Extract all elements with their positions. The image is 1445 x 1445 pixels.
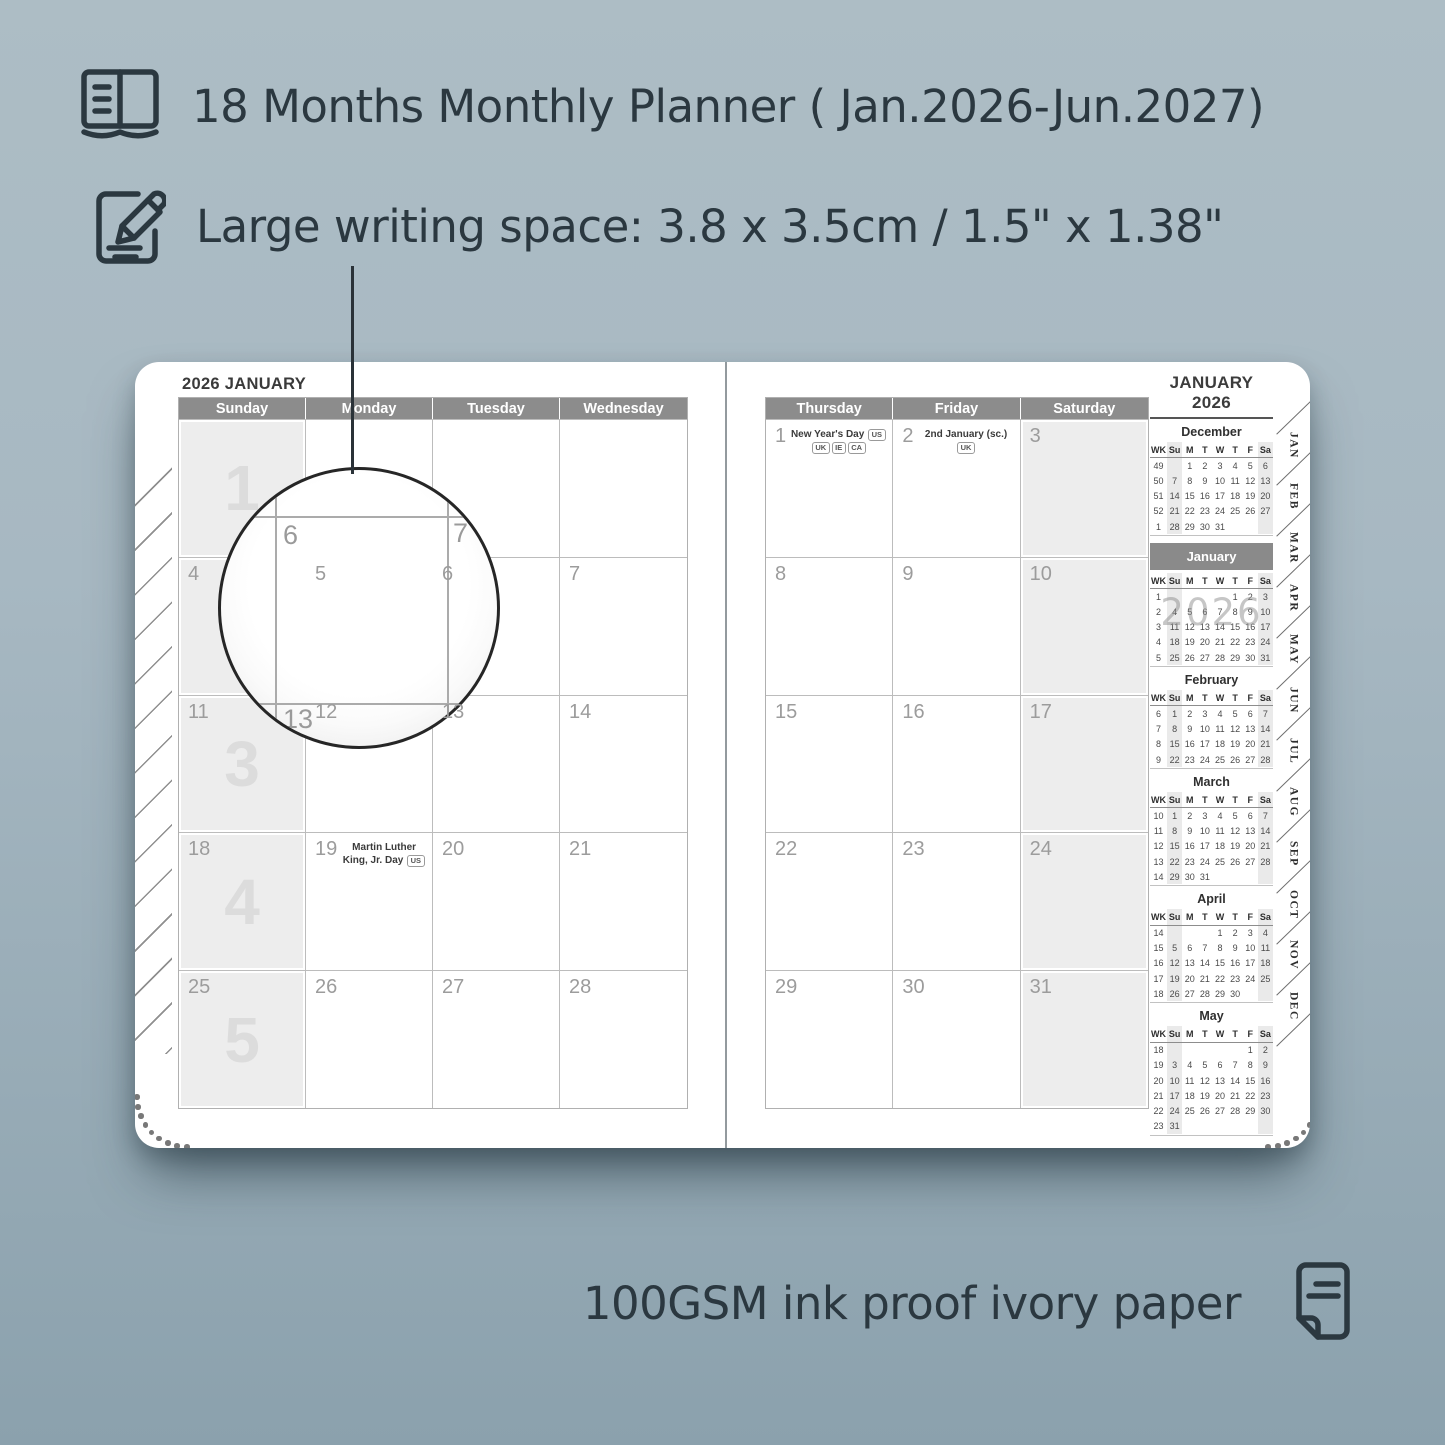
mini-date: 6 [1197,605,1212,620]
mini-date: 16 [1182,839,1197,854]
mini-col-header: T [1197,690,1212,706]
mini-date: 31 [1258,650,1273,665]
right-month-grid: ThursdayFridaySaturday1New Year's Day US… [765,397,1149,1109]
mini-date: 25 [1228,504,1243,519]
mini-col-header: T [1228,909,1243,925]
corner-perforation-dot [1265,1144,1271,1148]
mini-date: 1 [1228,589,1243,604]
mini-date: 31 [1197,869,1212,884]
mini-month-table: WKSuMTWTFSa18121934567892010111213141516… [1150,1026,1273,1135]
mini-month-title: March [1150,775,1273,789]
mini-date: 28 [1258,752,1273,767]
mini-months: DecemberWKSuMTWTFSa491234565078910111213… [1150,425,1273,1136]
mini-month-table: WKSuMTWTFSa11232456789103111213141516174… [1150,573,1273,667]
mini-date: 13 [1212,1073,1227,1088]
mini-date: 2 [1258,1043,1273,1058]
mini-col-header: T [1197,1026,1212,1042]
month-tab-label: JUN [1277,675,1310,726]
country-tag: US [868,429,885,441]
date-cell: 22 [766,832,893,970]
mini-date: 11 [1167,620,1182,635]
mini-date: 26 [1243,504,1258,519]
mini-date: 16 [1243,620,1258,635]
mini-date: 12 [1228,824,1243,839]
mini-col-header: Sa [1258,690,1273,706]
date-cell: 27 [433,970,560,1108]
date-number: 8 [775,563,786,586]
mini-date [1167,1043,1182,1058]
date-number: 25 [188,976,210,999]
mini-date: 29 [1243,1103,1258,1118]
page-binding [725,362,727,1148]
mini-date: 18 [1182,1088,1197,1103]
mini-date: 20 [1197,635,1212,650]
mini-date: 29 [1212,986,1227,1001]
mini-date: 15 [1167,839,1182,854]
mini-date: 14 [1212,620,1227,635]
mini-date [1228,1119,1243,1134]
mini-date: 4 [1167,605,1182,620]
mini-date: 7 [1197,941,1212,956]
date-number: 30 [902,976,924,999]
mini-date: 27 [1212,1103,1227,1118]
mini-date: 14 [1258,824,1273,839]
corner-perforation-dot [143,1122,149,1128]
date-number: 3 [1030,425,1041,448]
mini-month-title: February [1150,673,1273,687]
mini-date: 19 [1228,839,1243,854]
mini-col-header: WK [1150,792,1167,808]
corner-perforation-dot [149,1130,155,1136]
mini-date: 14 [1228,1073,1243,1088]
mini-date: 9 [1228,941,1243,956]
mini-week-number: 21 [1150,1088,1167,1103]
mini-week-number: 14 [1150,869,1167,884]
mini-date: 2 [1228,926,1243,941]
mini-week-number: 14 [1150,926,1167,941]
month-tab-jan: JAN [1277,420,1310,471]
mini-date: 10 [1258,605,1273,620]
mini-date: 12 [1182,620,1197,635]
mini-date: 26 [1167,986,1182,1001]
mini-date: 3 [1243,926,1258,941]
mini-col-header: F [1243,442,1258,458]
mini-week-number: 22 [1150,1103,1167,1118]
mini-date: 6 [1258,458,1273,473]
mini-date: 20 [1243,839,1258,854]
mini-col-header: Su [1167,909,1182,925]
date-cell: 24 [1021,832,1148,970]
mini-date: 9 [1258,1058,1273,1073]
mini-date: 28 [1228,1103,1243,1118]
mini-date: 15 [1167,737,1182,752]
mini-date: 8 [1228,605,1243,620]
date-number: 26 [315,976,337,999]
mini-date: 16 [1197,489,1212,504]
mini-date [1258,1119,1273,1134]
mini-date: 19 [1197,1088,1212,1103]
mini-col-header: M [1182,909,1197,925]
day-header-saturday: Saturday [1021,398,1148,419]
mini-date: 1 [1212,926,1227,941]
mini-date: 16 [1258,1073,1273,1088]
mini-date: 11 [1212,722,1227,737]
mini-date: 15 [1182,489,1197,504]
mini-date: 5 [1228,706,1243,721]
day-header-wednesday: Wednesday [560,398,687,419]
mini-date: 5 [1197,1058,1212,1073]
mini-col-header: T [1228,573,1243,589]
mini-date: 1 [1167,706,1182,721]
mini-date: 2 [1182,808,1197,823]
date-cell: 21 [560,832,687,970]
date-number: 21 [569,838,591,861]
mini-date: 19 [1182,635,1197,650]
country-tag: UK [812,442,830,454]
month-tab-label: SEP [1277,828,1310,879]
date-number: 24 [1030,838,1052,861]
mini-week-number: 13 [1150,854,1167,869]
mini-col-header: F [1243,909,1258,925]
magnified-grid-line [227,516,491,518]
mini-date: 24 [1212,504,1227,519]
mini-date [1212,1119,1227,1134]
mini-date: 21 [1258,839,1273,854]
mini-date: 22 [1167,854,1182,869]
mini-col-header: WK [1150,690,1167,706]
month-tab-sep: SEP [1277,828,1310,879]
magnified-grid-line [447,490,449,730]
mini-col-header: T [1197,792,1212,808]
feature-text-writing-space: Large writing space: 3.8 x 3.5cm / 1.5" … [196,200,1223,253]
paper-icon [1285,1258,1355,1349]
mini-date: 23 [1258,1088,1273,1103]
date-cell [560,419,687,557]
date-cell: 7 [560,557,687,695]
month-tab-label: APR [1277,573,1310,624]
mini-date: 24 [1167,1103,1182,1118]
mini-date: 28 [1197,986,1212,1001]
mini-date: 21 [1167,504,1182,519]
mini-date: 29 [1228,650,1243,665]
mini-date: 6 [1212,1058,1227,1073]
mini-date: 5 [1243,458,1258,473]
country-tag: UK [957,442,975,454]
mini-date: 21 [1197,971,1212,986]
month-tab-label: OCT [1277,879,1310,930]
mini-date: 30 [1182,869,1197,884]
mini-date: 24 [1243,971,1258,986]
mini-week-number: 6 [1150,706,1167,721]
date-cell: 31 [1021,970,1148,1108]
country-tag: IE [832,442,846,454]
mini-week-number: 15 [1150,941,1167,956]
mini-week-number: 16 [1150,956,1167,971]
date-number: 31 [1030,976,1052,999]
mini-date: 15 [1212,956,1227,971]
mini-date: 27 [1258,504,1273,519]
month-tab-label: FEB [1277,471,1310,522]
mini-col-header: WK [1150,909,1167,925]
mini-date: 3 [1197,706,1212,721]
date-number: 23 [902,838,924,861]
month-tab-strip: JANFEBMARAPRMAYJUNJULAUGSEPOCTNOVDEC [1277,420,1310,1032]
mini-week-number: 2 [1150,605,1167,620]
mini-date: 26 [1182,650,1197,665]
mini-date: 27 [1197,650,1212,665]
weekend-shade [1023,422,1146,555]
mini-date: 29 [1182,519,1197,534]
mini-date: 28 [1167,519,1182,534]
mini-month-may: MayWKSuMTWTFSa18121934567892010111213141… [1150,1009,1273,1135]
mini-col-header: WK [1150,573,1167,589]
mini-date: 12 [1228,722,1243,737]
mini-col-header: Sa [1258,573,1273,589]
date-cell: 30 [893,970,1020,1108]
magnified-date: 6 [283,520,298,551]
mini-date: 4 [1228,458,1243,473]
mini-col-header: Su [1167,442,1182,458]
country-tag: CA [848,442,866,454]
mini-col-header: Sa [1258,909,1273,925]
mini-date: 19 [1243,489,1258,504]
corner-perforation-dot [1275,1143,1281,1148]
corner-perforation-dot [138,1113,144,1119]
month-tab-label: NOV [1277,930,1310,981]
mini-week-number: 17 [1150,971,1167,986]
mini-date: 25 [1167,650,1182,665]
mini-month-table: WKSuMTWTFSa14123415567891011161213141516… [1150,909,1273,1003]
date-number: 14 [569,701,591,724]
mini-date [1212,589,1227,604]
mini-date: 18 [1212,839,1227,854]
month-tab-label: JAN [1277,420,1310,471]
right-page-title: JANUARY 2026 [1150,373,1273,413]
date-number: 18 [188,838,210,861]
mini-date: 15 [1228,620,1243,635]
date-number: 22 [775,838,797,861]
mini-week-number: 7 [1150,722,1167,737]
notebook-icon [78,66,162,147]
sidebar-rule [1150,417,1273,419]
mini-date: 5 [1167,941,1182,956]
date-cell: 20 [433,832,560,970]
mini-date [1212,1043,1227,1058]
mini-date: 21 [1212,635,1227,650]
day-header-tuesday: Tuesday [433,398,560,419]
mini-col-header: WK [1150,442,1167,458]
mini-date: 23 [1182,752,1197,767]
mini-date [1258,986,1273,1001]
left-page-title: 2026 JANUARY [182,375,306,394]
mini-date: 12 [1197,1073,1212,1088]
mini-date: 30 [1197,519,1212,534]
mini-date [1228,869,1243,884]
mini-date: 8 [1243,1058,1258,1073]
mini-month-january: JanuaryWKSuMTWTFSa1123245678910311121314… [1150,543,1273,667]
mini-date: 17 [1197,737,1212,752]
holiday-label: Martin Luther King, Jr. Day US [339,841,429,867]
mini-date: 6 [1243,808,1258,823]
month-tab-aug: AUG [1277,777,1310,828]
pencil-note-icon [88,180,166,273]
date-cell: 23 [893,832,1020,970]
date-cell: 16 [893,695,1020,833]
mini-date: 2 [1197,458,1212,473]
mini-date [1167,458,1182,473]
mini-week-number: 51 [1150,489,1167,504]
mini-date: 18 [1167,635,1182,650]
mini-date: 9 [1182,722,1197,737]
mini-date: 9 [1243,605,1258,620]
day-header-thursday: Thursday [766,398,893,419]
mini-week-number: 52 [1150,504,1167,519]
mini-month-december: DecemberWKSuMTWTFSa491234565078910111213… [1150,425,1273,536]
mini-date: 9 [1197,473,1212,488]
mini-date: 5 [1228,808,1243,823]
mini-week-number: 5 [1150,650,1167,665]
mini-month-title: April [1150,892,1273,906]
mini-date: 14 [1167,489,1182,504]
date-number: 6 [442,563,453,586]
mini-col-header: M [1182,442,1197,458]
mini-date: 25 [1212,854,1227,869]
feature-row-paper: 100GSM ink proof ivory paper [0,1258,1355,1349]
mini-date [1197,1043,1212,1058]
mini-date: 4 [1212,706,1227,721]
mini-date: 31 [1167,1119,1182,1134]
month-tab-mar: MAR [1277,522,1310,573]
mini-date: 3 [1167,1058,1182,1073]
mini-col-header: Sa [1258,792,1273,808]
mini-month-title: December [1150,425,1273,439]
mini-date: 7 [1258,808,1273,823]
mini-week-number: 9 [1150,752,1167,767]
mini-date [1243,986,1258,1001]
corner-perforation-dot [1301,1130,1307,1136]
mini-date: 16 [1228,956,1243,971]
mini-col-header: W [1212,1026,1227,1042]
day-header-monday: Monday [306,398,433,419]
date-number: 19 [315,838,337,861]
month-tab-may: MAY [1277,624,1310,675]
magnifier-pointer-line [351,266,354,474]
mini-date: 10 [1243,941,1258,956]
mini-col-header: W [1212,792,1227,808]
mini-date: 22 [1212,971,1227,986]
mini-date: 10 [1167,1073,1182,1088]
date-number: 2 [902,425,913,448]
mini-col-header: M [1182,573,1197,589]
mini-date: 26 [1228,854,1243,869]
day-header-friday: Friday [893,398,1020,419]
corner-perforation-dot [184,1144,190,1148]
date-number: 29 [775,976,797,999]
mini-date [1182,589,1197,604]
mini-date: 27 [1182,986,1197,1001]
mini-date: 28 [1258,854,1273,869]
mini-date: 24 [1197,854,1212,869]
mini-date [1197,926,1212,941]
mini-col-header: W [1212,573,1227,589]
mini-col-header: T [1228,1026,1243,1042]
mini-date: 6 [1243,706,1258,721]
mini-date [1243,869,1258,884]
mini-month-highlight-bar: January [1150,543,1273,570]
mini-date [1197,589,1212,604]
date-number: 13 [442,701,464,724]
mini-date: 16 [1182,737,1197,752]
date-number: 5 [315,563,326,586]
corner-perforation-dot [135,1104,141,1110]
mini-date: 12 [1167,956,1182,971]
mini-week-number: 11 [1150,824,1167,839]
date-number: 20 [442,838,464,861]
mini-date: 27 [1243,752,1258,767]
mini-date: 11 [1228,473,1243,488]
mini-col-header: T [1228,792,1243,808]
mini-col-header: M [1182,1026,1197,1042]
mini-date: 22 [1243,1088,1258,1103]
mini-week-number: 19 [1150,1058,1167,1073]
month-tab-label: DEC [1277,981,1310,1032]
mini-date: 13 [1197,620,1212,635]
mini-week-number: 50 [1150,473,1167,488]
month-tab-label: JUL [1277,726,1310,777]
date-number: 1 [775,425,786,448]
mini-date: 17 [1243,956,1258,971]
mini-date: 23 [1197,504,1212,519]
mini-date: 11 [1182,1073,1197,1088]
date-cell: 22nd January (sc.) UK [893,419,1020,557]
mini-col-header: F [1243,1026,1258,1042]
mini-date: 25 [1212,752,1227,767]
mini-date: 1 [1182,458,1197,473]
date-cell: 8 [766,557,893,695]
mini-date: 21 [1258,737,1273,752]
mini-date: 6 [1182,941,1197,956]
mini-date: 29 [1167,869,1182,884]
mini-col-header: W [1212,442,1227,458]
month-tab-dec: DEC [1277,981,1310,1032]
mini-col-header: Sa [1258,442,1273,458]
feature-text-planner-range: 18 Months Monthly Planner ( Jan.2026-Jun… [192,80,1264,133]
date-cell: 9 [893,557,1020,695]
mini-date [1228,519,1243,534]
mini-calendar-sidebar: JANUARY 2026 DecemberWKSuMTWTFSa49123456… [1150,370,1273,1136]
date-number: 17 [1030,701,1052,724]
mini-date: 4 [1212,808,1227,823]
magnified-date: 13 [283,704,313,735]
date-cell: 14 [560,695,687,833]
mini-date: 13 [1182,956,1197,971]
holiday-label: 2nd January (sc.) UK [915,428,1016,454]
mini-date: 4 [1182,1058,1197,1073]
corner-perforation-dot [1307,1122,1310,1128]
mini-date: 4 [1258,926,1273,941]
mini-week-number: 4 [1150,635,1167,650]
feature-text-paper: 100GSM ink proof ivory paper [583,1277,1241,1330]
month-tab-jun: JUN [1277,675,1310,726]
mini-col-header: W [1212,909,1227,925]
date-number: 4 [188,563,199,586]
date-cell: 10 [1021,557,1148,695]
date-cell: 1New Year's Day USUKIECA [766,419,893,557]
mini-date: 19 [1167,971,1182,986]
corner-perforation-dot [1293,1136,1299,1142]
mini-date: 30 [1258,1103,1273,1118]
magnified-grid-line [275,490,277,730]
